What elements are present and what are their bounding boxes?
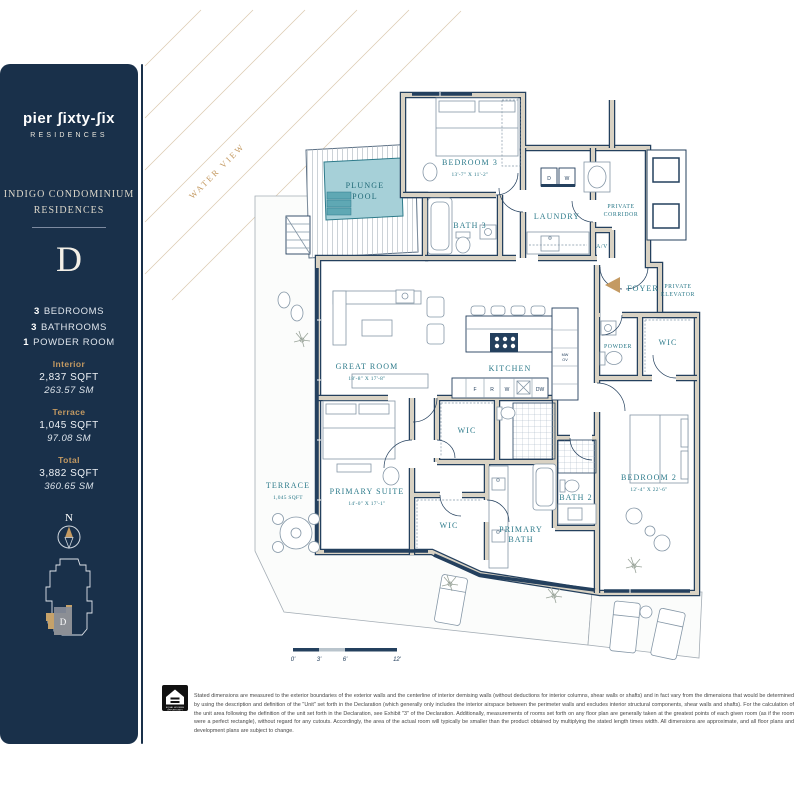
- area-total-sqft: 3,882 SQFT: [0, 468, 138, 479]
- room-label-wic-3: WIC: [659, 338, 678, 347]
- building-name-line2: RESIDENCES: [0, 203, 138, 219]
- area-interior: Interior 2,837 SQFT 263.57 SM: [0, 359, 138, 396]
- sidebar-accent-line: [141, 64, 143, 744]
- stool-icon: [531, 306, 545, 315]
- equal-housing-icon: EQUAL HOUSING OPPORTUNITY: [162, 685, 188, 718]
- feature-list: 3 BEDROOMS 3 BATHROOMS 1 POWDER ROOM: [0, 306, 138, 348]
- feature-bathrooms: 3 BATHROOMS: [0, 322, 138, 333]
- armchair-icon: [626, 508, 642, 524]
- lounger-icon: [609, 601, 640, 653]
- area-total-sm: 360.65 SM: [0, 481, 138, 492]
- toilet-icon: [501, 407, 515, 419]
- room-label-primary-suite: PRIMARY SUITE: [330, 487, 405, 496]
- armchair-icon: [427, 297, 444, 317]
- feature-bedrooms-count: 3: [34, 306, 40, 317]
- laundry-sink-icon: [541, 236, 559, 251]
- patio-table-icon: [280, 517, 312, 549]
- room-label-av: A/V: [596, 244, 608, 250]
- room-dim-bedroom2: 12'-4" X 22'-6": [630, 487, 667, 493]
- area-terrace-sm: 97.08 SM: [0, 433, 138, 444]
- room-label-plunge-pool-2: POOL: [352, 192, 378, 201]
- room-label-bedroom3: BEDROOM 3: [442, 158, 498, 167]
- brand-residences-label: RESIDENCES: [0, 132, 138, 139]
- stool-icon: [511, 306, 525, 315]
- room-area-terrace: 1,045 SQFT: [273, 495, 303, 501]
- feature-powder-label: POWDER ROOM: [33, 337, 115, 348]
- area-total: Total 3,882 SQFT 360.65 SM: [0, 455, 138, 492]
- divider-rule: [32, 227, 106, 228]
- compass-north-label: N: [0, 512, 138, 524]
- washer-label: W: [565, 176, 570, 182]
- room-dim-bedroom3: 13'-7" X 11'-2": [452, 172, 489, 178]
- room-label-bedroom2: BEDROOM 2: [621, 473, 677, 482]
- compass-icon: [47, 524, 91, 550]
- feature-powder-count: 1: [23, 337, 29, 348]
- room-label-plunge-pool-1: PLUNGE: [346, 181, 385, 190]
- armchair-icon: [427, 324, 444, 344]
- feature-bathrooms-count: 3: [31, 322, 37, 333]
- sink-icon: [601, 321, 616, 335]
- armchair-icon: [654, 535, 670, 551]
- room-label-powder: POWDER: [604, 344, 632, 350]
- microwave-label: MW: [562, 353, 569, 357]
- room-label-wic-1: WIC: [458, 426, 477, 435]
- room-label-primary-bath-1: PRIMARY: [499, 525, 543, 534]
- stool-icon: [471, 306, 485, 315]
- feature-powder-room: 1 POWDER ROOM: [0, 337, 138, 348]
- keyplan: D: [0, 555, 138, 656]
- room-label-laundry: LAUNDRY: [534, 212, 580, 221]
- range-label: R: [490, 387, 494, 393]
- building-name: INDIGO CONDOMINIUM RESIDENCES: [0, 187, 138, 218]
- area-terrace-sqft: 1,045 SQFT: [0, 420, 138, 431]
- area-terrace: Terrace 1,045 SQFT 97.08 SM: [0, 407, 138, 444]
- dishwasher-label: DW: [536, 387, 545, 393]
- toilet-icon: [456, 237, 470, 253]
- room-label-bath3: BATH 3: [453, 221, 487, 230]
- coffee-table-icon: [362, 320, 392, 336]
- room-label-private-corridor-1: PRIVATE: [607, 204, 634, 210]
- scale-bar: 0' 3' 6' 12': [291, 648, 402, 663]
- room-label-terrace: TERRACE: [266, 481, 310, 490]
- room-label-great-room: GREAT ROOM: [336, 362, 399, 371]
- keyplan-building-icon: D: [32, 555, 106, 651]
- scale-tick-6: 6': [343, 657, 348, 663]
- wine-label: W: [505, 387, 510, 393]
- feature-bathrooms-label: BATHROOMS: [41, 322, 107, 333]
- room-label-wic-2: WIC: [440, 521, 459, 530]
- room-label-foyer: FOYER: [627, 284, 659, 293]
- range-icon: [490, 333, 518, 352]
- room-label-primary-bath-2: BATH: [508, 535, 533, 544]
- toilet-icon: [606, 352, 622, 365]
- dryer-label: D: [547, 176, 551, 182]
- room-label-kitchen: KITCHEN: [489, 364, 532, 373]
- sidebar: pier ʃixty-ʃix RESIDENCES INDIGO CONDOMI…: [0, 64, 138, 744]
- oven-label: OV: [562, 358, 568, 362]
- building-name-line1: INDIGO CONDOMINIUM: [0, 187, 138, 203]
- room-label-private-elevator-2: ELEVATOR: [661, 292, 695, 298]
- equal-housing-text-2: OPPORTUNITY: [167, 709, 183, 711]
- stool-icon: [491, 306, 505, 315]
- brand-logo: pier ʃixty-ʃix: [0, 110, 138, 127]
- scale-tick-0: 0': [291, 657, 296, 663]
- scale-tick-12: 12': [393, 657, 402, 663]
- room-label-private-elevator-1: PRIVATE: [664, 284, 691, 290]
- elevator-bank: [647, 150, 686, 240]
- room-label-bath2: BATH 2: [559, 493, 593, 502]
- feature-bedrooms-label: BEDROOMS: [44, 306, 104, 317]
- toilet-icon: [565, 480, 579, 492]
- legal-disclaimer: Stated dimensions are measured to the ex…: [194, 692, 794, 735]
- keyplan-unit-label: D: [60, 617, 67, 627]
- area-interior-label: Interior: [0, 359, 138, 369]
- room-label-private-corridor-2: CORRIDOR: [604, 212, 639, 218]
- room-dim-great-room: 18'-8" X 17'-8": [348, 376, 385, 382]
- area-total-label: Total: [0, 455, 138, 465]
- unit-letter: D: [0, 238, 138, 280]
- room-dim-primary-suite: 14'-0" X 17'-1": [348, 501, 385, 507]
- scale-tick-3: 3': [317, 657, 322, 663]
- feature-bedrooms: 3 BEDROOMS: [0, 306, 138, 317]
- area-interior-sqft: 2,837 SQFT: [0, 372, 138, 383]
- area-interior-sm: 263.57 SM: [0, 385, 138, 396]
- area-terrace-label: Terrace: [0, 407, 138, 417]
- fridge-label: F: [473, 387, 476, 393]
